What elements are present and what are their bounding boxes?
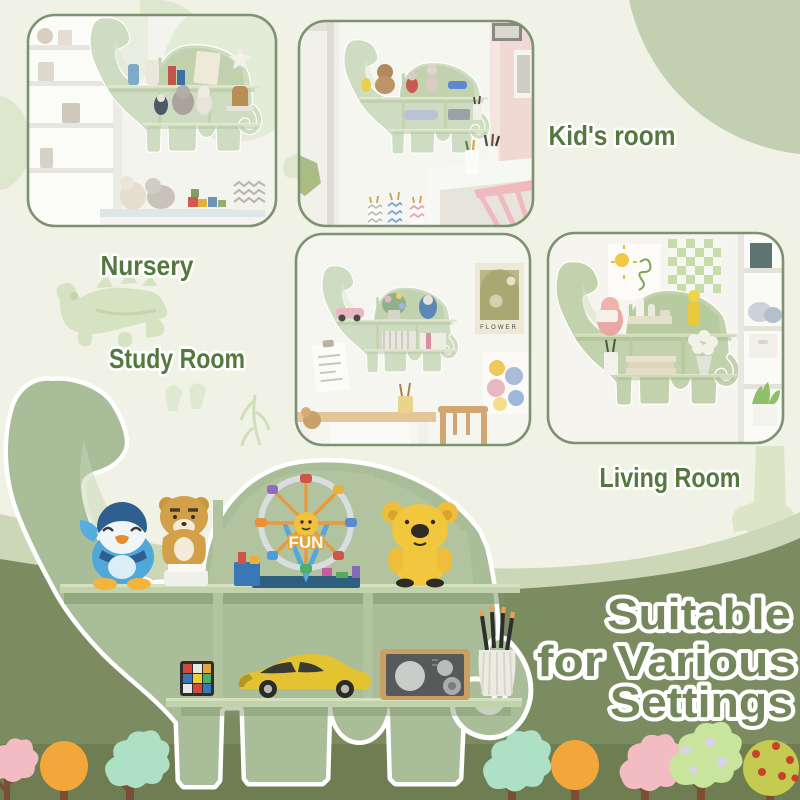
svg-text:Nursery: Nursery [101, 250, 194, 281]
svg-text:Living Room: Living Room [600, 462, 741, 493]
svg-text:Settings: Settings [610, 678, 793, 727]
svg-text:Kid's room: Kid's room [549, 120, 676, 151]
svg-text:FLOWER: FLOWER [480, 325, 518, 331]
svg-text:FUN: FUN [289, 533, 324, 552]
svg-text:Suitable: Suitable [607, 590, 791, 639]
svg-text:Study Room: Study Room [109, 343, 245, 374]
